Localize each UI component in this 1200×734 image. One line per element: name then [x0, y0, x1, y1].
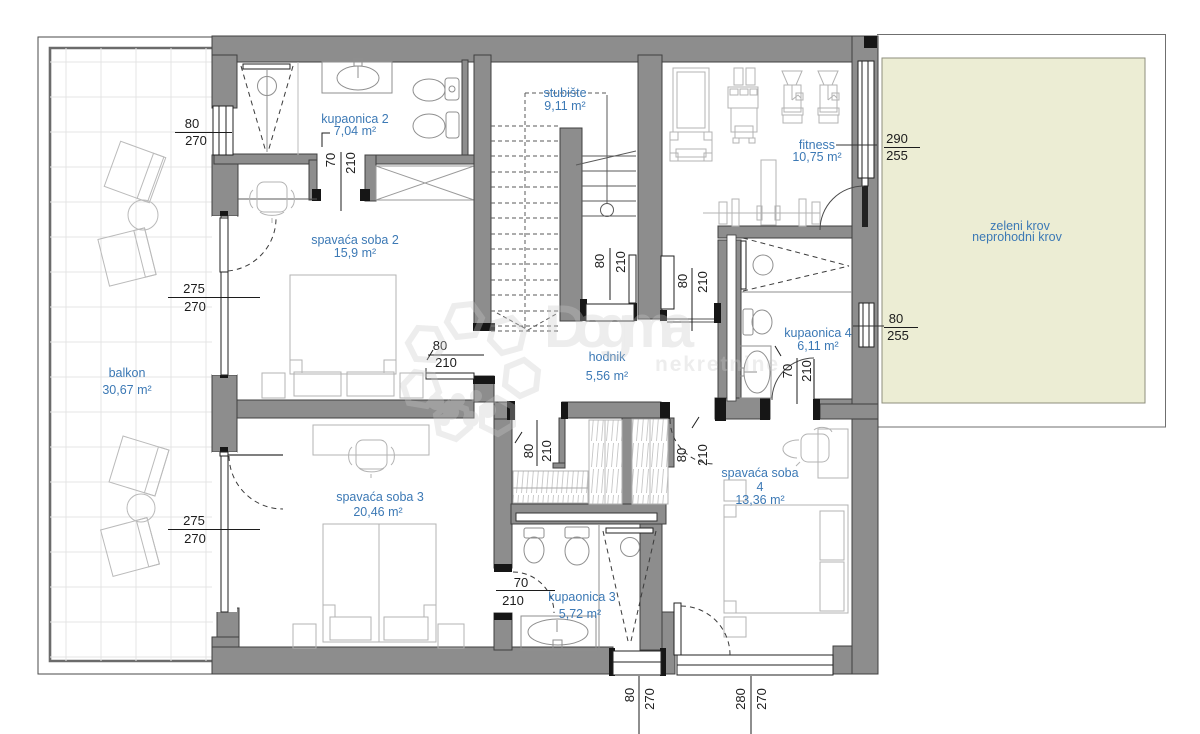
svg-text:270: 270 [184, 531, 206, 546]
svg-text:210: 210 [502, 593, 524, 608]
svg-text:4: 4 [757, 480, 764, 494]
svg-text:80: 80 [622, 688, 637, 702]
svg-text:80: 80 [185, 116, 199, 131]
svg-text:270: 270 [184, 299, 206, 314]
svg-text:9,11 m²: 9,11 m² [544, 99, 585, 113]
svg-text:80: 80 [521, 444, 536, 458]
svg-text:neprohodni krov: neprohodni krov [972, 230, 1062, 244]
svg-text:30,67 m²: 30,67 m² [102, 383, 151, 397]
svg-text:210: 210 [799, 360, 814, 382]
svg-text:80: 80 [592, 254, 607, 268]
svg-text:nekretnine: nekretnine [655, 353, 780, 376]
svg-text:270: 270 [185, 133, 207, 148]
svg-text:kupaonica 3: kupaonica 3 [548, 590, 615, 604]
svg-text:70: 70 [780, 364, 795, 378]
svg-text:270: 270 [754, 688, 769, 710]
svg-text:5,56 m²: 5,56 m² [586, 369, 628, 383]
svg-text:210: 210 [539, 440, 554, 462]
svg-text:275: 275 [183, 281, 205, 296]
svg-text:255: 255 [887, 328, 909, 343]
svg-text:6,11 m²: 6,11 m² [797, 339, 838, 353]
svg-text:13,36 m²: 13,36 m² [735, 493, 784, 507]
svg-text:80: 80 [674, 448, 689, 462]
svg-text:70: 70 [323, 153, 338, 167]
svg-text:spavaća soba: spavaća soba [721, 466, 798, 480]
svg-text:290: 290 [886, 131, 908, 146]
svg-text:10,75 m²: 10,75 m² [792, 150, 841, 164]
svg-text:stubište: stubište [543, 86, 586, 100]
svg-text:210: 210 [343, 152, 358, 174]
svg-text:Dogma: Dogma [544, 293, 695, 360]
svg-text:kupaonica 4: kupaonica 4 [784, 326, 851, 340]
svg-text:80: 80 [675, 274, 690, 288]
svg-text:210: 210 [695, 444, 710, 466]
svg-text:275: 275 [183, 513, 205, 528]
svg-text:210: 210 [613, 251, 628, 273]
svg-text:balkon: balkon [109, 366, 146, 380]
svg-text:20,46 m²: 20,46 m² [353, 505, 402, 519]
svg-text:15,9 m²: 15,9 m² [334, 246, 376, 260]
svg-text:7,04 m²: 7,04 m² [334, 124, 376, 138]
svg-text:spavaća soba 2: spavaća soba 2 [311, 233, 399, 247]
svg-text:spavaća soba 3: spavaća soba 3 [336, 490, 424, 504]
svg-text:280: 280 [733, 688, 748, 710]
svg-text:255: 255 [886, 148, 908, 163]
svg-text:270: 270 [642, 688, 657, 710]
svg-text:80: 80 [889, 311, 903, 326]
svg-text:210: 210 [695, 271, 710, 293]
svg-text:70: 70 [514, 575, 528, 590]
svg-text:5,72 m²: 5,72 m² [559, 607, 601, 621]
